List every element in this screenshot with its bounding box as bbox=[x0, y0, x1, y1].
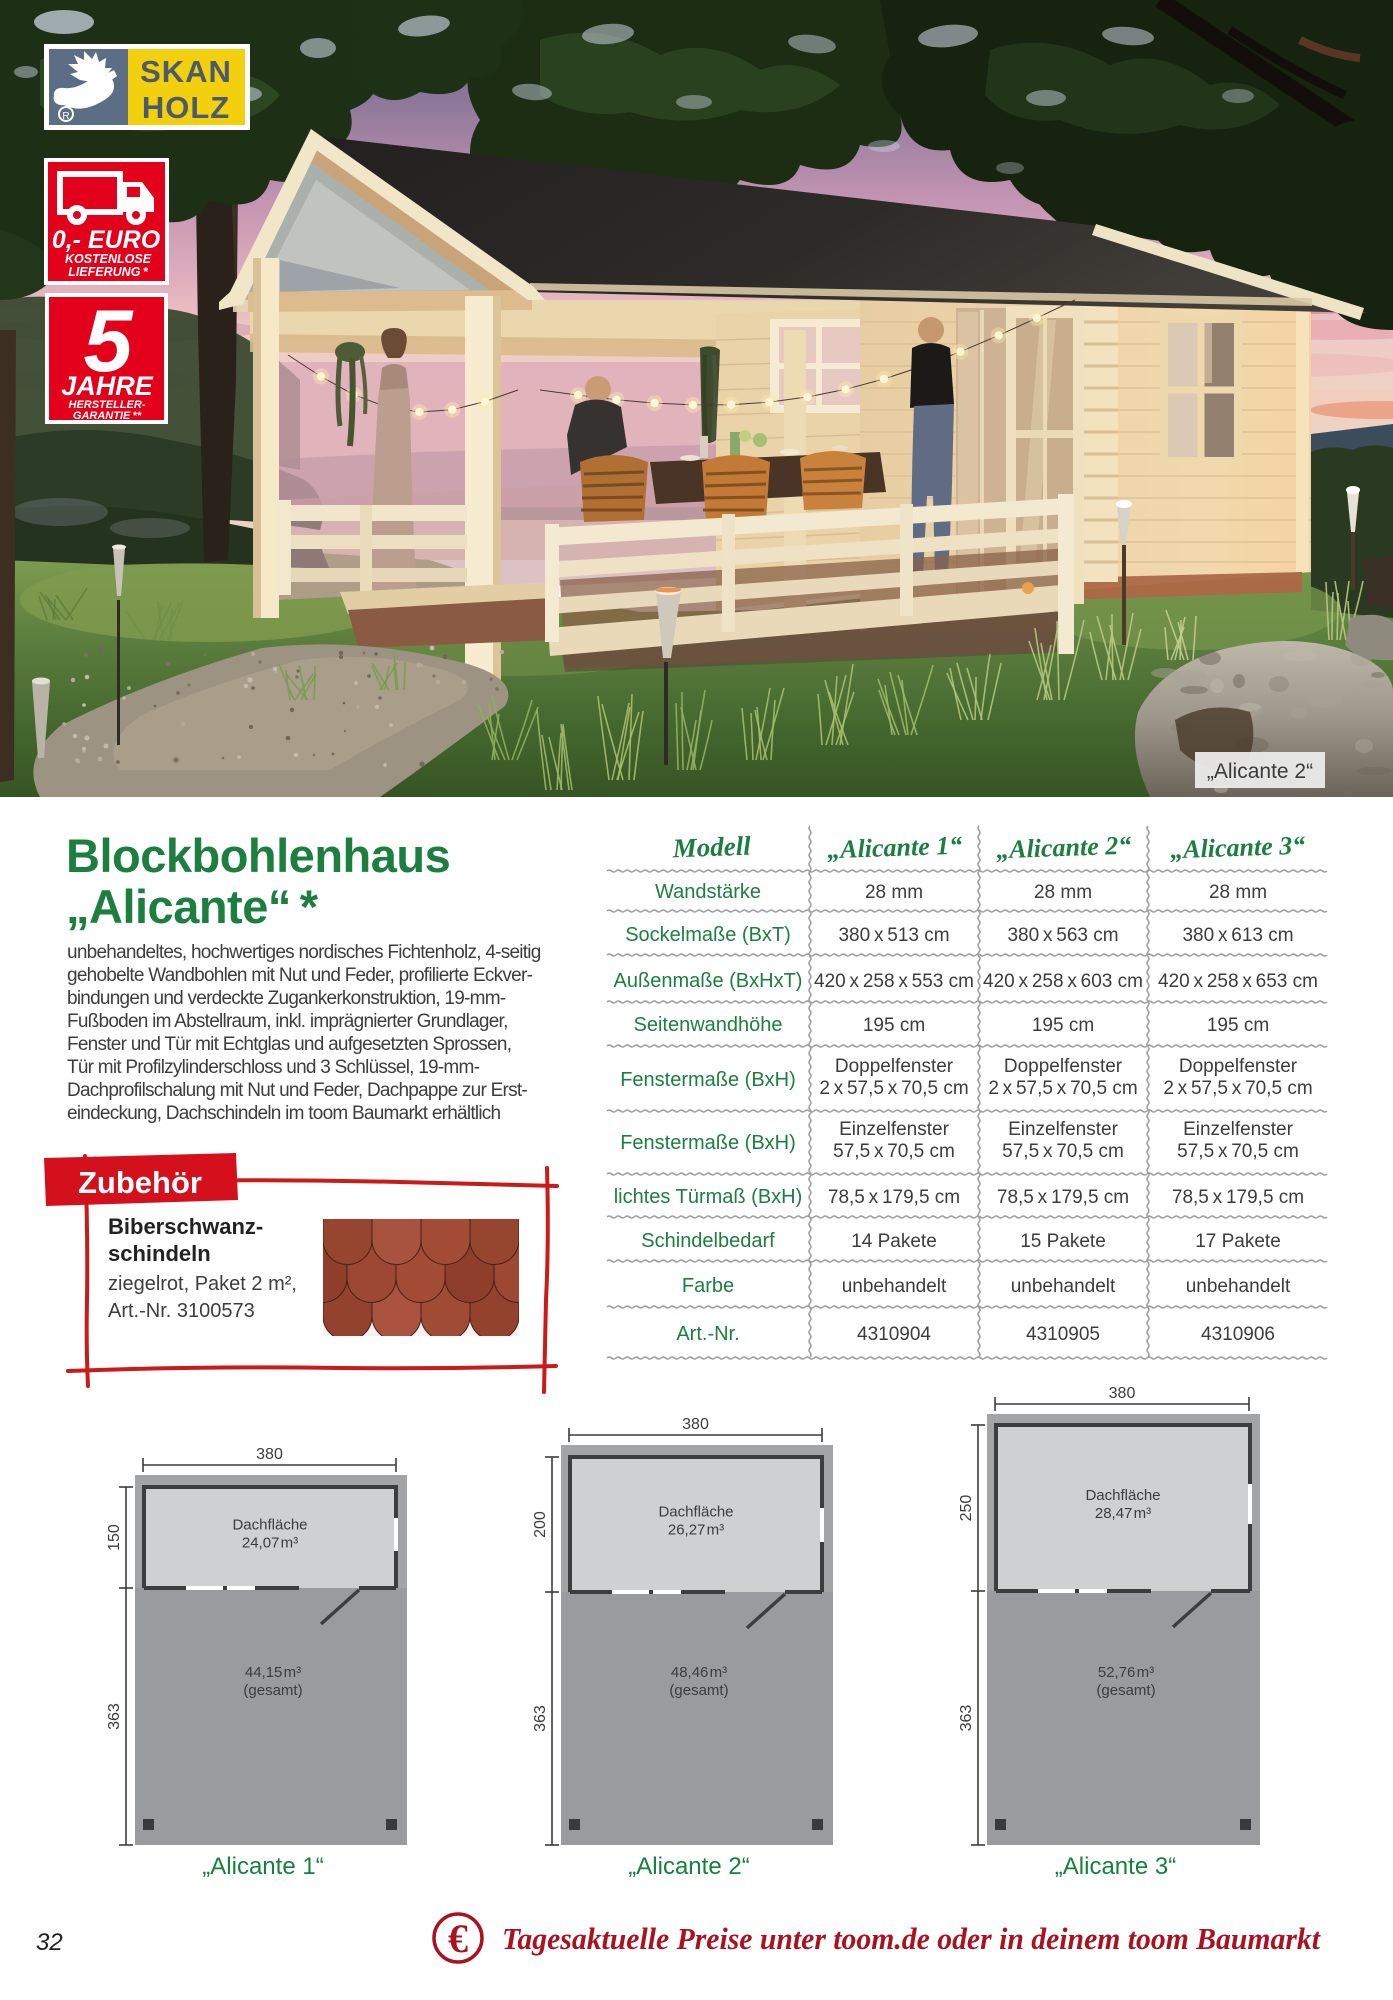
svg-text:„Alicante 2“: „Alicante 2“ bbox=[628, 1853, 749, 1880]
svg-text:26,27 m³: 26,27 m³ bbox=[668, 1522, 724, 1539]
svg-text:unbehandelt: unbehandelt bbox=[1011, 1276, 1116, 1297]
svg-text:Wandstärke: Wandstärke bbox=[655, 881, 761, 903]
svg-text:78,5 x 179,5 cm: 78,5 x 179,5 cm bbox=[828, 1187, 960, 1208]
svg-text:schindeln: schindeln bbox=[108, 1241, 211, 1266]
svg-text:Art.-Nr. 3100573: Art.-Nr. 3100573 bbox=[108, 1300, 255, 1322]
svg-text:420 x 258 x 653 cm: 420 x 258 x 653 cm bbox=[1158, 971, 1318, 992]
svg-text:Doppelfenster: Doppelfenster bbox=[835, 1056, 954, 1077]
svg-text:(gesamt): (gesamt) bbox=[243, 1682, 302, 1699]
svg-text:24,07 m³: 24,07 m³ bbox=[242, 1535, 298, 1552]
svg-text:250: 250 bbox=[958, 1495, 975, 1522]
svg-text:Einzelfenster: Einzelfenster bbox=[839, 1119, 950, 1140]
svg-text:Zubehör: Zubehör bbox=[78, 1165, 202, 1200]
svg-text:Einzelfenster: Einzelfenster bbox=[1183, 1119, 1294, 1140]
svg-text:57,5 x 70,5 cm: 57,5 x 70,5 cm bbox=[833, 1141, 955, 1162]
svg-text:2 x 57,5 x 70,5 cm: 2 x 57,5 x 70,5 cm bbox=[1163, 1078, 1312, 1099]
svg-text:„Alicante 2“: „Alicante 2“ bbox=[996, 831, 1132, 865]
svg-text:78,5 x 179,5 cm: 78,5 x 179,5 cm bbox=[997, 1187, 1129, 1208]
svg-text:lichtes Türmaß (BxH): lichtes Türmaß (BxH) bbox=[614, 1186, 803, 1208]
svg-text:380 x 613 cm: 380 x 613 cm bbox=[1182, 925, 1293, 946]
svg-text:28 mm: 28 mm bbox=[865, 882, 923, 903]
svg-text:195 cm: 195 cm bbox=[1032, 1015, 1094, 1036]
svg-text:Dachfläche: Dachfläche bbox=[658, 1504, 733, 1521]
svg-text:„Alicante 1“: „Alicante 1“ bbox=[827, 831, 963, 865]
svg-text:14 Pakete: 14 Pakete bbox=[851, 1231, 937, 1252]
svg-text:380: 380 bbox=[1109, 1385, 1136, 1402]
svg-text:Biberschwanz-: Biberschwanz- bbox=[108, 1214, 263, 1239]
svg-text:Sockelmaße (BxT): Sockelmaße (BxT) bbox=[625, 924, 791, 946]
svg-text:(gesamt): (gesamt) bbox=[669, 1682, 728, 1699]
svg-text:32: 32 bbox=[36, 1929, 63, 1956]
svg-text:Dachfläche: Dachfläche bbox=[232, 1517, 307, 1534]
svg-text:28,47 m³: 28,47 m³ bbox=[1095, 1505, 1151, 1522]
svg-text:363: 363 bbox=[106, 1703, 123, 1730]
svg-text:363: 363 bbox=[958, 1705, 975, 1732]
svg-text:Schindelbedarf: Schindelbedarf bbox=[641, 1230, 775, 1252]
svg-text:78,5 x 179,5 cm: 78,5 x 179,5 cm bbox=[1172, 1187, 1304, 1208]
svg-text:Doppelfenster: Doppelfenster bbox=[1179, 1056, 1298, 1077]
svg-text:Farbe: Farbe bbox=[682, 1275, 734, 1297]
svg-text:Seitenwandhöhe: Seitenwandhöhe bbox=[633, 1014, 782, 1036]
svg-text:200: 200 bbox=[532, 1511, 549, 1538]
svg-text:2 x 57,5 x 70,5 cm: 2 x 57,5 x 70,5 cm bbox=[819, 1078, 968, 1099]
svg-text:Fenstermaße (BxH): Fenstermaße (BxH) bbox=[620, 1069, 796, 1091]
svg-text:2 x 57,5 x 70,5 cm: 2 x 57,5 x 70,5 cm bbox=[988, 1078, 1137, 1099]
svg-text:Doppelfenster: Doppelfenster bbox=[1004, 1056, 1123, 1077]
svg-text:52,76 m³: 52,76 m³ bbox=[1098, 1664, 1154, 1681]
svg-text:57,5 x 70,5 cm: 57,5 x 70,5 cm bbox=[1177, 1141, 1299, 1162]
svg-text:380: 380 bbox=[256, 1446, 283, 1463]
svg-text:4310904: 4310904 bbox=[857, 1324, 931, 1345]
svg-text:44,15 m³: 44,15 m³ bbox=[245, 1664, 301, 1681]
svg-text:380 x 513 cm: 380 x 513 cm bbox=[838, 925, 949, 946]
svg-text:(gesamt): (gesamt) bbox=[1096, 1682, 1155, 1699]
svg-text:17 Pakete: 17 Pakete bbox=[1195, 1231, 1281, 1252]
svg-text:Modell: Modell bbox=[671, 831, 751, 864]
svg-text:363: 363 bbox=[532, 1705, 549, 1732]
svg-text:„Alicante 1“: „Alicante 1“ bbox=[202, 1853, 323, 1880]
svg-text:48,46 m³: 48,46 m³ bbox=[671, 1664, 727, 1681]
svg-text:Außenmaße (BxHxT): Außenmaße (BxHxT) bbox=[614, 970, 803, 992]
svg-text:ziegelrot, Paket 2 m²,: ziegelrot, Paket 2 m², bbox=[108, 1273, 297, 1295]
svg-text:Dachfläche: Dachfläche bbox=[1085, 1487, 1160, 1504]
svg-text:4310906: 4310906 bbox=[1201, 1324, 1275, 1345]
svg-text:420 x 258 x 553 cm: 420 x 258 x 553 cm bbox=[814, 971, 974, 992]
svg-text:195 cm: 195 cm bbox=[1207, 1015, 1269, 1036]
svg-text:380 x 563 cm: 380 x 563 cm bbox=[1007, 925, 1118, 946]
svg-text:57,5 x 70,5 cm: 57,5 x 70,5 cm bbox=[1002, 1141, 1124, 1162]
svg-text:Tagesaktuelle Preise unter too: Tagesaktuelle Preise unter toom.de oder … bbox=[502, 1921, 1321, 1956]
svg-text:380: 380 bbox=[682, 1416, 709, 1433]
svg-text:150: 150 bbox=[106, 1524, 123, 1551]
svg-text:4310905: 4310905 bbox=[1026, 1324, 1100, 1345]
svg-text:Einzelfenster: Einzelfenster bbox=[1008, 1119, 1119, 1140]
svg-text:€: € bbox=[448, 1916, 468, 1961]
svg-text:195 cm: 195 cm bbox=[863, 1015, 925, 1036]
svg-text:28 mm: 28 mm bbox=[1034, 882, 1092, 903]
svg-text:28 mm: 28 mm bbox=[1209, 882, 1267, 903]
svg-text:„Alicante 3“: „Alicante 3“ bbox=[1055, 1853, 1176, 1880]
svg-text:unbehandelt: unbehandelt bbox=[1186, 1276, 1291, 1297]
svg-text:„Alicante 3“: „Alicante 3“ bbox=[1170, 831, 1306, 865]
svg-text:Fenstermaße (BxH): Fenstermaße (BxH) bbox=[620, 1132, 796, 1154]
svg-text:unbehandelt: unbehandelt bbox=[842, 1276, 947, 1297]
svg-text:420 x 258 x 603 cm: 420 x 258 x 603 cm bbox=[983, 971, 1143, 992]
svg-text:15 Pakete: 15 Pakete bbox=[1020, 1231, 1106, 1252]
svg-text:Art.-Nr.: Art.-Nr. bbox=[676, 1323, 739, 1345]
